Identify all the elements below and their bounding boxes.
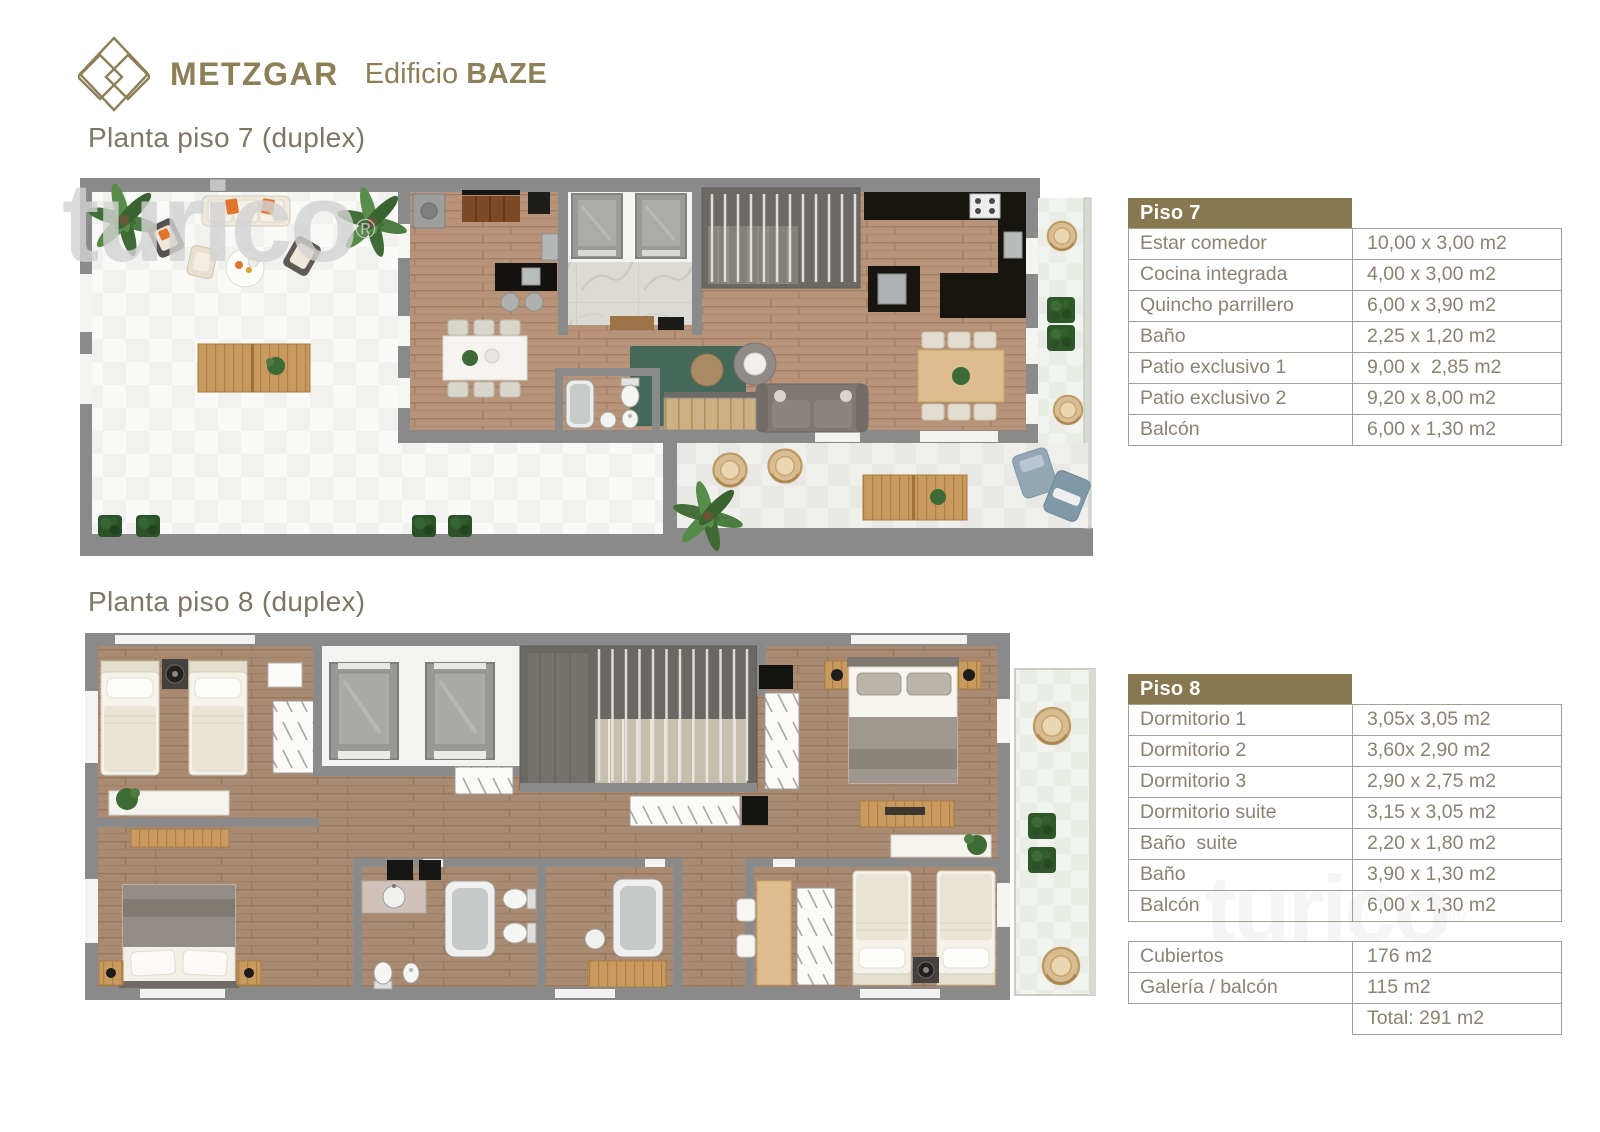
wicker-chair-icon	[714, 454, 747, 487]
building-name: BAZE	[466, 58, 547, 90]
wicker-chair-icon	[1048, 222, 1077, 251]
wicker-chair-icon	[1043, 948, 1079, 984]
room-dimensions: 4,00 x 3,00 m2	[1353, 260, 1561, 290]
room-label: Baño	[1129, 860, 1353, 890]
hedge-planter-icon	[1028, 847, 1056, 873]
building-title: Edificio BAZE	[365, 58, 548, 91]
summary-label: Cubiertos	[1129, 942, 1353, 972]
table-row: Balcón6,00 x 1,30 m2	[1128, 415, 1562, 446]
total-value: Total: 291 m2	[1352, 1004, 1562, 1035]
table-row: Cocina integrada4,00 x 3,00 m2	[1128, 260, 1562, 291]
closet-icon	[455, 767, 513, 794]
room-dimensions: 3,15 x 3,05 m2	[1353, 798, 1561, 828]
table-piso8: Piso 8 Dormitorio 13,05x 3,05 m2 Dormito…	[1128, 674, 1562, 922]
room-label: Dormitorio 1	[1129, 705, 1353, 735]
single-bed-icon	[189, 661, 247, 775]
room-dimensions: 6,00 x 1,30 m2	[1353, 415, 1561, 445]
sink-icon	[600, 412, 616, 428]
table-summary: Cubiertos176 m2 Galería / balcón115 m2 T…	[1128, 941, 1562, 1035]
elevator-icon	[426, 663, 494, 759]
room-dimensions: 2,90 x 2,75 m2	[1353, 767, 1561, 797]
table-row: Dormitorio 23,60x 2,90 m2	[1128, 736, 1562, 767]
bidet-icon	[403, 963, 419, 983]
room-dimensions: 6,00 x 1,30 m2	[1353, 891, 1561, 921]
table-row: Dormitorio 13,05x 3,05 m2	[1128, 705, 1562, 736]
room-dimensions: 3,05x 3,05 m2	[1353, 705, 1561, 735]
room-dimensions: 9,00 x 2,85 m2	[1353, 353, 1561, 383]
room-dimensions: 2,20 x 1,80 m2	[1353, 829, 1561, 859]
floorplan-piso7	[80, 178, 1093, 560]
table-row: Dormitorio 32,90 x 2,75 m2	[1128, 767, 1562, 798]
room-label: Cocina integrada	[1129, 260, 1353, 290]
table-row: Baño3,90 x 1,30 m2	[1128, 860, 1562, 891]
patio1-table	[863, 475, 967, 520]
closet-icon	[630, 796, 740, 826]
brochure-page: METZGAR Edificio BAZE Planta piso 7 (dup…	[0, 0, 1600, 1132]
table-row: Baño2,25 x 1,20 m2	[1128, 322, 1562, 353]
patio-dining-table	[198, 344, 310, 392]
single-bed-icon	[853, 871, 911, 985]
table-row: Galería / balcón115 m2	[1128, 973, 1562, 1004]
elevator-lobby	[558, 192, 702, 335]
elevator-icon	[572, 194, 622, 258]
wood-stairs-icon	[664, 392, 756, 430]
table-piso7-title: Piso 7	[1128, 198, 1352, 228]
room-dimensions: 6,00 x 3,90 m2	[1353, 291, 1561, 321]
bush-icon	[98, 515, 122, 537]
room-dimensions: 3,60x 2,90 m2	[1353, 736, 1561, 766]
table-row: Estar comedor10,00 x 3,00 m2	[1128, 229, 1562, 260]
total-spacer	[1128, 1004, 1352, 1035]
bush-icon	[412, 515, 436, 537]
sofa-icon	[756, 384, 868, 432]
wicker-chair-icon	[1054, 396, 1083, 425]
brand-name: METZGAR	[170, 56, 339, 93]
room-label: Baño	[1129, 322, 1353, 352]
table-row: Dormitorio suite3,15 x 3,05 m2	[1128, 798, 1562, 829]
room-dimensions: 9,20 x 8,00 m2	[1353, 384, 1561, 414]
floorplan-piso8	[85, 633, 1100, 1000]
elevator-lobby-piso8	[313, 646, 520, 794]
quincho-dining-table	[918, 332, 1004, 420]
sink-icon	[585, 929, 605, 949]
room-label: Patio exclusivo 1	[1129, 353, 1353, 383]
single-bed-icon	[101, 661, 159, 775]
wood-mat-icon	[588, 961, 666, 987]
bench-icon	[131, 829, 229, 847]
table-row: Baño suite2,20 x 1,80 m2	[1128, 829, 1562, 860]
toilet-icon	[621, 378, 639, 407]
closet-icon	[765, 693, 799, 789]
table-row: Patio exclusivo 29,20 x 8,00 m2	[1128, 384, 1562, 415]
table-row: Patio exclusivo 19,00 x 2,85 m2	[1128, 353, 1562, 384]
room-label: Baño suite	[1129, 829, 1353, 859]
table-piso7: Piso 7 Estar comedor10,00 x 3,00 m2 Coci…	[1128, 198, 1562, 446]
room-label: Balcón	[1129, 891, 1353, 921]
chair-icon	[737, 899, 755, 921]
wicker-chair-icon	[769, 450, 802, 483]
round-table-icon	[226, 249, 264, 287]
room-label: Patio exclusivo 2	[1129, 384, 1353, 414]
room-label: Dormitorio suite	[1129, 798, 1353, 828]
single-bed-icon	[937, 871, 995, 985]
wicker-chair-icon	[1034, 708, 1070, 744]
elevator-icon	[636, 194, 686, 258]
toilet-icon	[503, 923, 536, 943]
room-label: Dormitorio 3	[1129, 767, 1353, 797]
elevator-icon	[330, 663, 398, 759]
double-bed-icon	[847, 657, 959, 783]
room-dimensions: 3,90 x 1,30 m2	[1353, 860, 1561, 890]
room-label: Quincho parrillero	[1129, 291, 1353, 321]
table-piso8-title: Piso 8	[1128, 674, 1352, 704]
dormitorio-1	[101, 659, 315, 775]
room-label: Estar comedor	[1129, 229, 1353, 259]
estar-comedor-table	[443, 320, 527, 397]
room-label: Balcón	[1129, 415, 1353, 445]
room-dimensions: 2,25 x 1,20 m2	[1353, 322, 1561, 352]
brand-header: METZGAR Edificio BAZE	[78, 36, 547, 112]
bar-stool-icon	[525, 293, 543, 311]
toilet-icon	[374, 962, 392, 989]
heading-piso7: Planta piso 7 (duplex)	[88, 122, 365, 154]
bush-icon	[448, 515, 472, 537]
summary-value: 176 m2	[1353, 942, 1561, 972]
bar-stool-icon	[501, 293, 519, 311]
table-row: Balcón6,00 x 1,30 m2	[1128, 891, 1562, 922]
washer-icon	[419, 860, 441, 880]
summary-label: Galería / balcón	[1129, 973, 1353, 1003]
hedge-planter-icon	[1047, 297, 1075, 323]
metzgar-logo-icon	[78, 36, 150, 112]
table-row: Cubiertos176 m2	[1128, 942, 1562, 973]
balcony-piso8	[1015, 669, 1096, 995]
summary-value: 115 m2	[1353, 973, 1561, 1003]
desk-icon	[757, 881, 791, 985]
building-label: Edificio	[365, 58, 459, 90]
stove-icon	[970, 194, 1000, 218]
table-row: Quincho parrillero6,00 x 3,90 m2	[1128, 291, 1562, 322]
washer-icon	[387, 860, 413, 880]
bush-icon	[136, 515, 160, 537]
coffee-table-icon	[691, 354, 723, 386]
heading-piso8: Planta piso 8 (duplex)	[88, 586, 365, 618]
sink-icon	[383, 886, 405, 908]
room-dimensions: 10,00 x 3,00 m2	[1353, 229, 1561, 259]
room-label: Dormitorio 2	[1129, 736, 1353, 766]
closet-icon	[797, 888, 835, 985]
hedge-planter-icon	[1047, 325, 1075, 351]
table-row-total: Total: 291 m2	[1128, 1004, 1562, 1035]
closet-icon	[273, 701, 315, 773]
bidet-icon	[622, 410, 638, 428]
toilet-icon	[503, 889, 536, 909]
stairwell-piso7	[702, 188, 860, 288]
hedge-planter-icon	[1028, 813, 1056, 839]
chair-icon	[737, 935, 755, 957]
interior-piso7	[410, 188, 1038, 443]
